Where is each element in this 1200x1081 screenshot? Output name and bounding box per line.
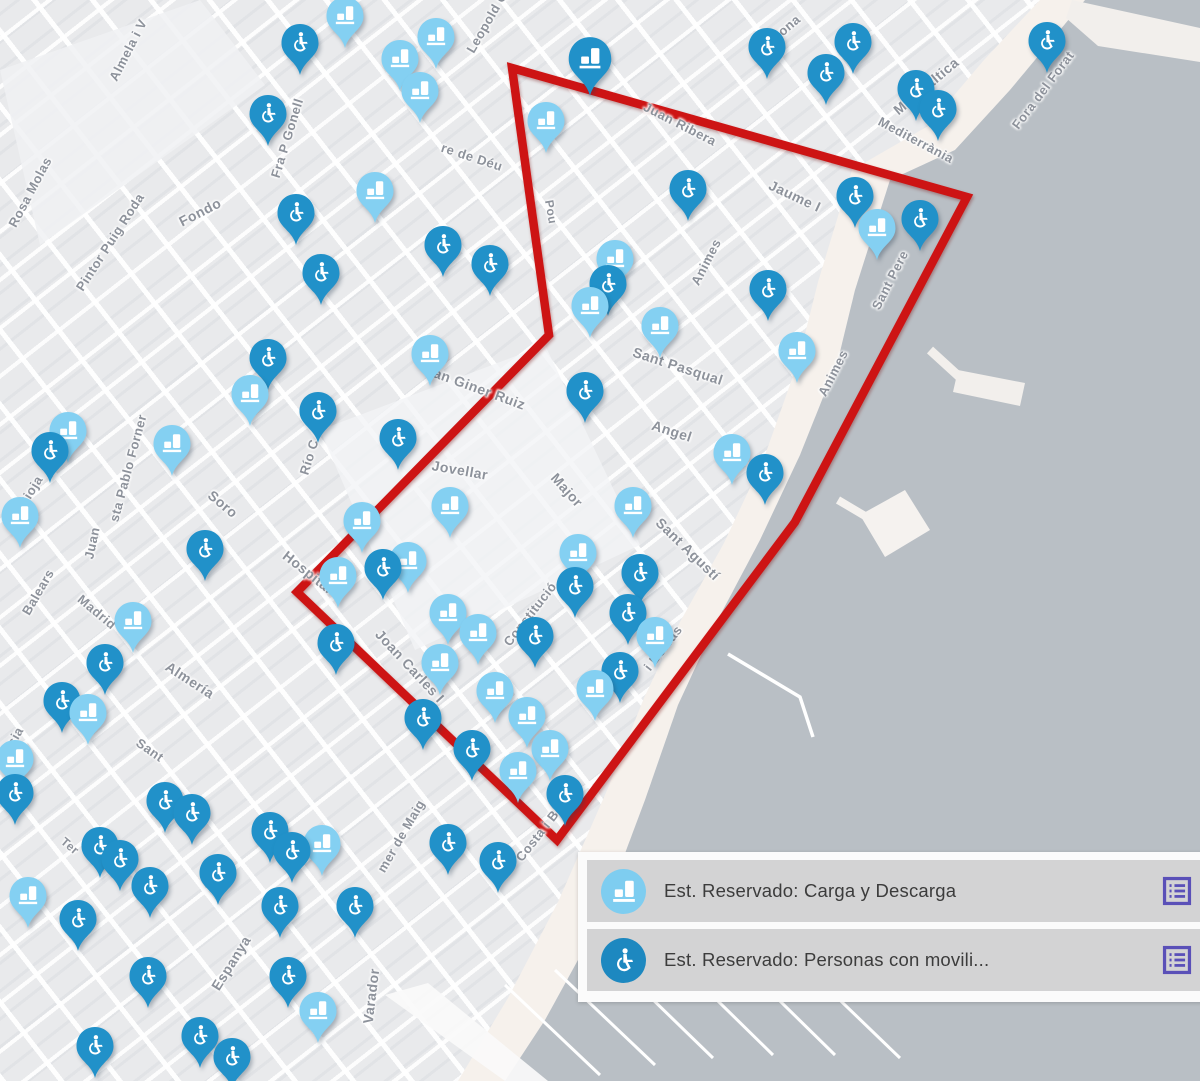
truck-icon (307, 999, 329, 1021)
truck-icon (579, 294, 601, 316)
truck-icon (239, 382, 261, 404)
truck-icon (4, 747, 26, 769)
wheelchair-icon (181, 801, 203, 823)
wheelchair-icon (564, 574, 586, 596)
wheelchair-icon (432, 233, 454, 255)
truck-icon (866, 216, 888, 238)
wheelchair-icon (601, 938, 646, 983)
carga-descarga-pin[interactable] (857, 208, 897, 261)
movilidad-reducida-pin[interactable] (276, 193, 316, 246)
truck-icon (786, 339, 808, 361)
movilidad-reducida-pin[interactable] (280, 23, 320, 76)
truck-icon (389, 47, 411, 69)
wheelchair-icon (94, 651, 116, 673)
carga-descarga-pin[interactable] (777, 331, 817, 384)
carga-descarga-pin[interactable] (420, 643, 460, 696)
legend-row-movilidad[interactable]: Est. Reservado: Personas con movili... (587, 929, 1200, 991)
movilidad-reducida-pin[interactable] (806, 53, 846, 106)
wheelchair-icon (344, 894, 366, 916)
truck-icon (437, 601, 459, 623)
wheelchair-icon (757, 277, 779, 299)
movilidad-reducida-pin[interactable] (272, 831, 312, 884)
wheelchair-icon (137, 964, 159, 986)
wheelchair-icon (307, 399, 329, 421)
map-legend-panel: Est. Reservado: Carga y Descarga Est. Re… (578, 852, 1200, 1002)
carga-descarga-pin[interactable] (152, 424, 192, 477)
carga-descarga-pin[interactable] (8, 876, 48, 929)
wheelchair-icon (844, 184, 866, 206)
wheelchair-icon (554, 782, 576, 804)
carga-descarga-cluster-pin[interactable] (567, 36, 613, 96)
carga-descarga-pin[interactable] (570, 286, 610, 339)
movilidad-reducida-pin[interactable] (58, 899, 98, 952)
wheelchair-icon (487, 849, 509, 871)
carga-descarga-pin[interactable] (498, 751, 538, 804)
carga-descarga-pin[interactable] (0, 496, 40, 549)
wheelchair-icon (221, 1045, 243, 1067)
movilidad-reducida-pin[interactable] (316, 623, 356, 676)
movilidad-reducida-pin[interactable] (363, 548, 403, 601)
wheelchair-icon (387, 426, 409, 448)
movilidad-reducida-pin[interactable] (515, 616, 555, 669)
movilidad-reducida-pin[interactable] (1027, 21, 1067, 74)
legend-label-movilidad: Est. Reservado: Personas con movili... (664, 949, 1144, 971)
movilidad-reducida-pin[interactable] (747, 27, 787, 80)
carga-descarga-pin[interactable] (575, 669, 615, 722)
wheelchair-icon (189, 1024, 211, 1046)
carga-descarga-pin[interactable] (318, 556, 358, 609)
legend-label-carga: Est. Reservado: Carga y Descarga (664, 880, 1144, 902)
wheelchair-icon (754, 461, 776, 483)
wheelchair-icon (257, 102, 279, 124)
carga-descarga-pin[interactable] (325, 0, 365, 49)
truck-icon (351, 509, 373, 531)
wheelchair-icon (277, 964, 299, 986)
truck-icon (507, 759, 529, 781)
carga-descarga-pin[interactable] (416, 17, 456, 70)
truck-icon (425, 25, 447, 47)
movilidad-reducida-pin[interactable] (378, 418, 418, 471)
wheelchair-icon (289, 31, 311, 53)
list-icon[interactable] (1162, 945, 1192, 975)
movilidad-reducida-pin[interactable] (335, 886, 375, 939)
movilidad-reducida-pin[interactable] (130, 866, 170, 919)
truck-icon (649, 314, 671, 336)
movilidad-reducida-pin[interactable] (545, 774, 585, 827)
map-screenshot: Rosa MolasAlmela i VPintor Puig RodaFond… (0, 0, 1200, 1081)
wheelchair-icon (524, 624, 546, 646)
truck-icon (601, 869, 646, 914)
truck-icon (539, 737, 561, 759)
wheelchair-icon (574, 379, 596, 401)
wheelchair-icon (677, 177, 699, 199)
wheelchair-icon (909, 207, 931, 229)
wheelchair-icon (372, 556, 394, 578)
wheelchair-icon (412, 706, 434, 728)
movilidad-reducida-pin[interactable] (198, 853, 238, 906)
wheelchair-icon (756, 35, 778, 57)
truck-icon (334, 4, 356, 26)
truck-icon (721, 441, 743, 463)
truck-icon (122, 609, 144, 631)
carga-descarga-pin[interactable] (458, 613, 498, 666)
truck-icon (311, 832, 333, 854)
wheelchair-icon (84, 1034, 106, 1056)
truck-icon (439, 494, 461, 516)
truck-icon (622, 494, 644, 516)
wheelchair-icon (461, 737, 483, 759)
wheelchair-icon (285, 201, 307, 223)
wheelchair-icon (257, 346, 279, 368)
movilidad-reducida-pin[interactable] (248, 94, 288, 147)
movilidad-reducida-pin[interactable] (668, 169, 708, 222)
carga-descarga-pin[interactable] (342, 501, 382, 554)
truck-icon (484, 679, 506, 701)
carga-descarga-pin[interactable] (613, 486, 653, 539)
movilidad-reducida-pin[interactable] (260, 886, 300, 939)
wheelchair-icon (815, 61, 837, 83)
movilidad-reducida-pin[interactable] (85, 643, 125, 696)
movilidad-reducida-pin[interactable] (918, 89, 958, 142)
wheelchair-icon (842, 30, 864, 52)
movilidad-reducida-pin[interactable] (301, 253, 341, 306)
movilidad-reducida-pin[interactable] (172, 793, 212, 846)
wheelchair-icon (269, 894, 291, 916)
wheelchair-icon (281, 839, 303, 861)
wheelchair-icon (194, 537, 216, 559)
truck-icon (161, 432, 183, 454)
wheelchair-icon (629, 561, 651, 583)
wheelchair-icon (39, 439, 61, 461)
truck-icon (77, 701, 99, 723)
truck-icon (567, 541, 589, 563)
carga-descarga-pin[interactable] (430, 486, 470, 539)
truck-icon (9, 504, 31, 526)
carga-descarga-pin[interactable] (635, 616, 675, 669)
truck-icon (516, 704, 538, 726)
truck-icon (467, 621, 489, 643)
wheelchair-icon (310, 261, 332, 283)
movilidad-reducida-pin[interactable] (900, 199, 940, 252)
carga-descarga-pin[interactable] (68, 693, 108, 746)
wheelchair-icon (1036, 29, 1058, 51)
truck-icon (419, 342, 441, 364)
movilidad-reducida-pin[interactable] (745, 453, 785, 506)
movilidad-reducida-pin[interactable] (0, 773, 35, 826)
carga-descarga-pin[interactable] (526, 101, 566, 154)
movilidad-reducida-pin[interactable] (185, 529, 225, 582)
movilidad-reducida-pin[interactable] (565, 371, 605, 424)
movilidad-reducida-pin[interactable] (212, 1037, 252, 1081)
movilidad-reducida-pin[interactable] (403, 698, 443, 751)
movilidad-reducida-pin[interactable] (748, 269, 788, 322)
movilidad-reducida-pin[interactable] (428, 823, 468, 876)
wheelchair-icon (479, 252, 501, 274)
wheelchair-icon (4, 781, 26, 803)
carga-descarga-pin[interactable] (355, 171, 395, 224)
movilidad-reducida-pin[interactable] (75, 1026, 115, 1079)
truck-icon (578, 46, 603, 71)
carga-descarga-pin[interactable] (640, 306, 680, 359)
truck-icon (429, 651, 451, 673)
movilidad-reducida-pin[interactable] (452, 729, 492, 782)
movilidad-reducida-pin[interactable] (298, 391, 338, 444)
list-icon[interactable] (1162, 876, 1192, 906)
movilidad-reducida-pin[interactable] (30, 431, 70, 484)
movilidad-reducida-pin[interactable] (128, 956, 168, 1009)
truck-icon (17, 884, 39, 906)
movilidad-reducida-pin[interactable] (555, 566, 595, 619)
wheelchair-icon (437, 831, 459, 853)
movilidad-reducida-pin[interactable] (470, 244, 510, 297)
truck-icon (535, 109, 557, 131)
truck-icon (409, 79, 431, 101)
carga-descarga-pin[interactable] (298, 991, 338, 1044)
carga-descarga-pin[interactable] (230, 374, 270, 427)
movilidad-reducida-pin[interactable] (423, 225, 463, 278)
wheelchair-icon (927, 97, 949, 119)
wheelchair-icon (325, 631, 347, 653)
wheelchair-icon (67, 907, 89, 929)
wheelchair-icon (139, 874, 161, 896)
truck-icon (327, 564, 349, 586)
legend-row-carga[interactable]: Est. Reservado: Carga y Descarga (587, 860, 1200, 922)
movilidad-reducida-pin[interactable] (478, 841, 518, 894)
truck-icon (644, 624, 666, 646)
truck-icon (584, 677, 606, 699)
wheelchair-icon (207, 861, 229, 883)
carga-descarga-pin[interactable] (410, 334, 450, 387)
carga-descarga-pin[interactable] (400, 71, 440, 124)
wheelchair-icon (109, 847, 131, 869)
truck-icon (364, 179, 386, 201)
